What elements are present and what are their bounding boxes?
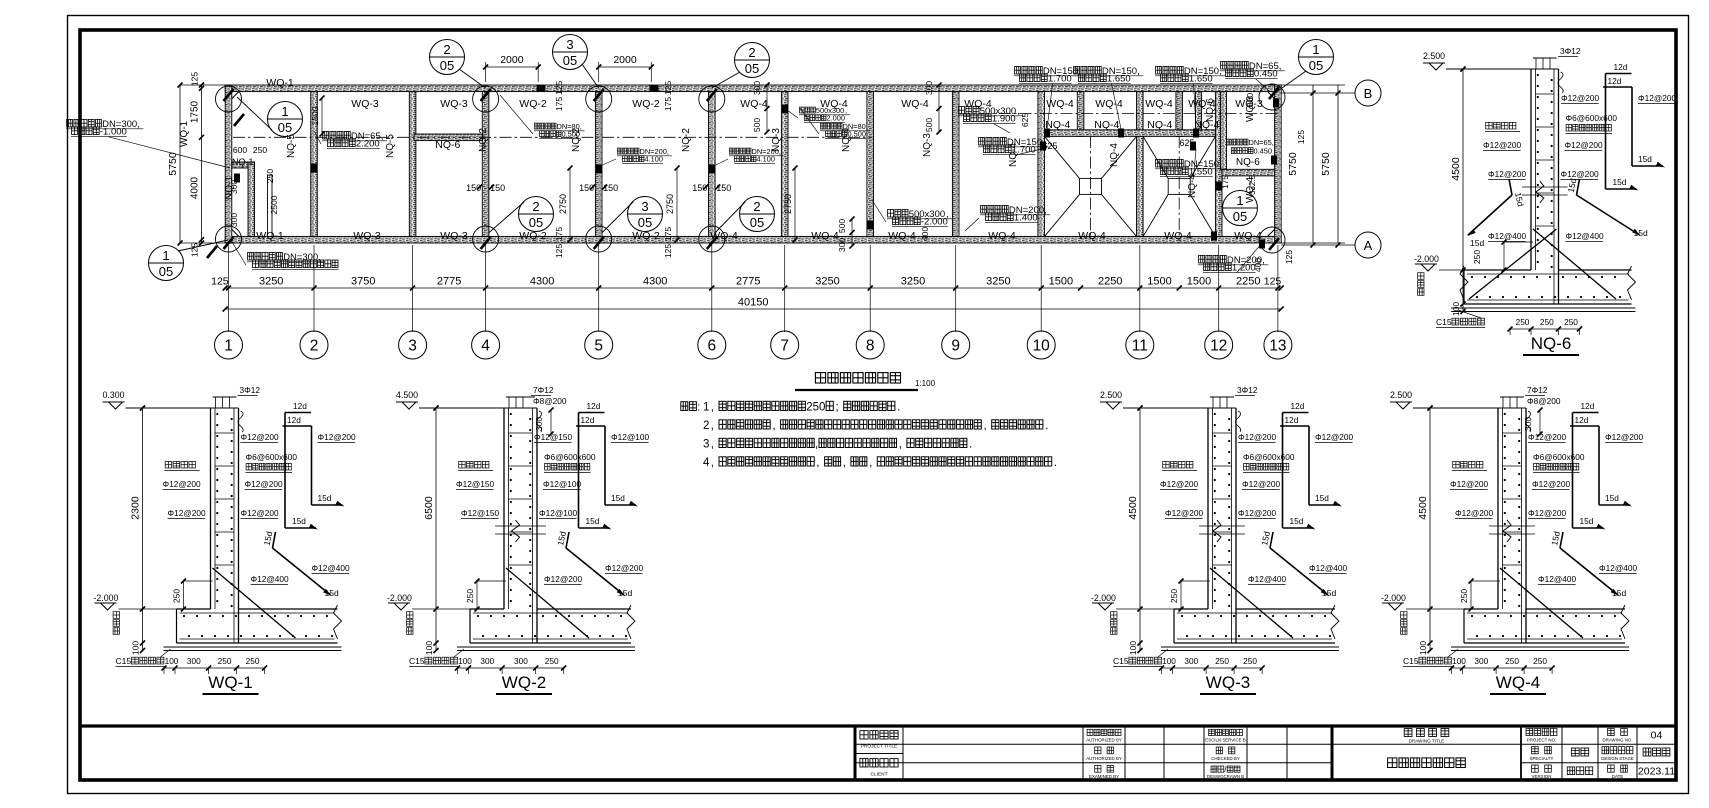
svg-text:,: ,: [779, 147, 781, 156]
svg-text:Φ12@400: Φ12@400: [1599, 563, 1637, 573]
svg-text:,: ,: [1044, 205, 1047, 216]
svg-text:500: 500: [752, 118, 762, 132]
svg-text:175: 175: [663, 227, 673, 241]
svg-text:4: 4: [703, 457, 710, 469]
svg-text:625: 625: [1020, 113, 1030, 127]
svg-text:12d: 12d: [1291, 401, 1305, 411]
svg-text:5750: 5750: [1287, 152, 1299, 176]
svg-text:125: 125: [1264, 276, 1282, 288]
svg-text:AUTHORIZED BY: AUTHORIZED BY: [1086, 738, 1122, 743]
svg-text:Φ12@200: Φ12@200: [1605, 432, 1643, 442]
svg-text:NQ-6: NQ-6: [1236, 157, 1260, 168]
svg-text:100: 100: [1128, 641, 1138, 655]
svg-text:4.500: 4.500: [396, 390, 418, 400]
svg-text:2775: 2775: [736, 276, 760, 288]
svg-text:5: 5: [594, 338, 603, 355]
svg-text:100: 100: [458, 656, 472, 666]
svg-text:PROJECT TITLE: PROJECT TITLE: [861, 744, 898, 750]
svg-text:WQ-4: WQ-4: [1145, 98, 1173, 110]
svg-text:15d: 15d: [1605, 493, 1619, 503]
svg-text:-2.000: -2.000: [921, 217, 948, 228]
svg-text:C15: C15: [409, 656, 425, 666]
svg-text:3: 3: [641, 199, 648, 214]
svg-text:VERSION: VERSION: [1532, 774, 1552, 779]
svg-text:,: ,: [815, 439, 818, 451]
svg-text:250: 250: [1215, 656, 1229, 666]
svg-text:C15: C15: [116, 656, 132, 666]
svg-text:CHECKED BY: CHECKED BY: [1211, 756, 1240, 761]
svg-text:1: 1: [1312, 42, 1319, 57]
svg-text:Φ12@200: Φ12@200: [1483, 140, 1521, 150]
svg-text:1: 1: [703, 402, 709, 414]
svg-text:4500: 4500: [1450, 157, 1462, 181]
svg-text:,: ,: [381, 131, 384, 142]
svg-text:Φ12@400: Φ12@400: [312, 563, 350, 573]
svg-text:125: 125: [1284, 250, 1294, 264]
svg-text:7Φ12: 7Φ12: [1527, 385, 1548, 395]
svg-text:Φ6@600x600: Φ6@600x600: [1566, 113, 1618, 123]
svg-text:Φ12@200: Φ12@200: [1561, 169, 1599, 179]
svg-text:05: 05: [159, 264, 173, 279]
svg-text:12d: 12d: [581, 415, 595, 425]
svg-text:125: 125: [211, 276, 229, 288]
svg-text:.: .: [969, 439, 972, 451]
svg-text:3Φ12: 3Φ12: [1560, 46, 1581, 56]
svg-text:2775: 2775: [437, 276, 461, 288]
svg-text:3: 3: [703, 439, 709, 451]
svg-text:Φ8@200: Φ8@200: [1527, 396, 1561, 406]
svg-text:15d: 15d: [618, 588, 632, 598]
svg-text:175: 175: [554, 97, 564, 111]
svg-text:3250: 3250: [901, 276, 925, 288]
svg-text:Φ12@400: Φ12@400: [1566, 231, 1604, 241]
svg-text:-2.000: -2.000: [387, 593, 412, 603]
svg-text:WQ-4: WQ-4: [740, 98, 768, 110]
svg-text:3: 3: [408, 338, 417, 355]
svg-text:Φ12@200: Φ12@200: [318, 432, 356, 442]
svg-text:2: 2: [703, 420, 709, 432]
svg-text:DATE: DATE: [1612, 774, 1623, 779]
svg-text:Φ12@200: Φ12@200: [1238, 432, 1276, 442]
svg-text:Φ12@200: Φ12@200: [168, 508, 206, 518]
svg-text:Φ12@200: Φ12@200: [1455, 508, 1493, 518]
svg-text:250: 250: [1516, 317, 1530, 327]
svg-text::: :: [697, 402, 700, 414]
svg-text:,: ,: [1219, 159, 1222, 170]
svg-text:1:100: 1:100: [915, 379, 936, 388]
svg-text:NQ-3: NQ-3: [922, 133, 933, 157]
svg-text:,: ,: [1017, 106, 1020, 117]
svg-text:,: ,: [772, 420, 775, 432]
svg-text:175: 175: [554, 227, 564, 241]
svg-text:Φ12@200: Φ12@200: [1638, 93, 1676, 103]
svg-text:300: 300: [187, 656, 201, 666]
svg-text:5750: 5750: [1320, 152, 1332, 176]
svg-text:250: 250: [465, 589, 475, 603]
svg-text:40150: 40150: [738, 297, 769, 309]
svg-text:2250: 2250: [1236, 276, 1260, 288]
svg-text:100: 100: [1451, 302, 1461, 316]
svg-text:A: A: [1364, 238, 1373, 253]
svg-text:WQ-1: WQ-1: [256, 230, 284, 242]
svg-text:12d: 12d: [1614, 62, 1628, 72]
svg-text:WQ-1: WQ-1: [179, 120, 190, 147]
svg-text:4500: 4500: [1417, 496, 1429, 520]
svg-text:332.5: 332.5: [1248, 174, 1257, 195]
svg-text:1.650: 1.650: [1189, 74, 1213, 85]
svg-text:1.550: 1.550: [1189, 167, 1213, 178]
svg-text:05: 05: [638, 215, 652, 230]
svg-text:300: 300: [1474, 656, 1488, 666]
svg-text:2: 2: [532, 199, 539, 214]
svg-text:Φ12@200: Φ12@200: [241, 432, 279, 442]
svg-text:Φ6@600x600: Φ6@600x600: [1533, 452, 1585, 462]
svg-text:400: 400: [920, 227, 930, 241]
svg-text:100: 100: [424, 641, 434, 655]
svg-text:4300: 4300: [530, 276, 554, 288]
svg-text:NQ-6: NQ-6: [1205, 98, 1216, 122]
svg-text:NQ-4: NQ-4: [1045, 119, 1070, 131]
svg-text:Φ12@200: Φ12@200: [1528, 432, 1566, 442]
svg-text:NQ-5: NQ-5: [385, 134, 396, 158]
svg-text:100: 100: [165, 656, 179, 666]
svg-text:Φ12@150: Φ12@150: [534, 432, 572, 442]
svg-text:05: 05: [440, 58, 454, 73]
svg-text:2750: 2750: [783, 194, 793, 214]
svg-text:WQ-2: WQ-2: [519, 230, 547, 242]
svg-text:05: 05: [1233, 209, 1247, 224]
svg-text:Φ12@200: Φ12@200: [1565, 140, 1603, 150]
svg-text:DRAWING NO.: DRAWING NO.: [1602, 738, 1632, 743]
svg-text:Φ12@200: Φ12@200: [1242, 479, 1280, 489]
svg-text:300: 300: [924, 81, 934, 95]
svg-text:4000: 4000: [190, 176, 201, 199]
svg-text:250: 250: [1169, 589, 1179, 603]
svg-text:DRAWING TITLE: DRAWING TITLE: [1409, 739, 1445, 744]
svg-text:-2.000: -2.000: [1091, 593, 1116, 603]
svg-text:WQ-2: WQ-2: [519, 98, 547, 110]
svg-text:-2.000: -2.000: [1414, 254, 1439, 264]
svg-text:600: 600: [233, 145, 247, 155]
svg-text:Φ12@400: Φ12@400: [1538, 574, 1576, 584]
svg-text:15d: 15d: [1634, 228, 1648, 238]
svg-text:NQ-1: NQ-1: [232, 157, 254, 167]
svg-text:PROJECT NO.: PROJECT NO.: [1527, 738, 1556, 743]
svg-text:05: 05: [750, 215, 764, 230]
svg-text:125: 125: [663, 81, 673, 95]
svg-text:4300: 4300: [643, 276, 667, 288]
svg-text:5750: 5750: [167, 152, 179, 176]
svg-text:15d: 15d: [1638, 154, 1652, 164]
svg-text:15d: 15d: [1315, 493, 1329, 503]
svg-text:125: 125: [1296, 130, 1306, 144]
svg-text:WQ-2: WQ-2: [632, 98, 660, 110]
svg-text:15d: 15d: [292, 516, 306, 526]
svg-text:125: 125: [190, 72, 200, 86]
svg-text:Φ6@600x600: Φ6@600x600: [544, 452, 596, 462]
svg-text:Φ12@100: Φ12@100: [543, 479, 581, 489]
svg-text:15d: 15d: [1470, 238, 1484, 248]
svg-text:Φ12@200: Φ12@200: [1450, 479, 1488, 489]
svg-text:Φ12@100: Φ12@100: [539, 508, 577, 518]
svg-text:2.500: 2.500: [1423, 51, 1445, 61]
svg-text:Φ12@400: Φ12@400: [251, 574, 289, 584]
svg-text:.: .: [1054, 457, 1057, 469]
svg-text:1500: 1500: [1147, 276, 1171, 288]
svg-text:15d: 15d: [318, 493, 332, 503]
svg-text:;: ;: [836, 402, 839, 414]
svg-text:2023.11: 2023.11: [1638, 766, 1675, 778]
svg-text:15d: 15d: [1612, 588, 1626, 598]
svg-text:Φ12@200: Φ12@200: [1165, 508, 1203, 518]
svg-text:3750: 3750: [351, 276, 375, 288]
svg-text:2000: 2000: [500, 54, 524, 66]
svg-text:,: ,: [667, 147, 669, 156]
svg-text:15d: 15d: [1580, 516, 1594, 526]
svg-text:NQ-2: NQ-2: [681, 128, 692, 152]
svg-text:C15: C15: [1436, 317, 1452, 327]
svg-text:15d: 15d: [1613, 177, 1627, 187]
svg-text:Φ12@200: Φ12@200: [1528, 508, 1566, 518]
svg-text:,: ,: [1262, 255, 1265, 266]
svg-text:13: 13: [1269, 338, 1286, 355]
svg-text:B: B: [1364, 86, 1373, 101]
svg-text:05: 05: [529, 215, 543, 230]
svg-text:,: ,: [580, 122, 582, 131]
svg-text:1: 1: [281, 104, 288, 119]
svg-text:2: 2: [310, 338, 319, 355]
svg-text:15d: 15d: [325, 588, 339, 598]
svg-text:7: 7: [780, 338, 789, 355]
svg-text:9: 9: [951, 338, 960, 355]
svg-text:WQ-4: WQ-4: [1496, 673, 1540, 692]
svg-text:WQ-2: WQ-2: [502, 673, 546, 692]
svg-text:3250: 3250: [259, 276, 283, 288]
svg-text:2: 2: [443, 42, 450, 57]
svg-text:12d: 12d: [587, 401, 601, 411]
svg-text:ESCILN SERVICE B: ESCILN SERVICE B: [1205, 738, 1245, 743]
svg-text:WQ-3: WQ-3: [353, 230, 381, 242]
svg-text:1500: 1500: [310, 106, 320, 125]
svg-text:Φ12@200: Φ12@200: [245, 479, 283, 489]
svg-text:100: 100: [1452, 656, 1466, 666]
svg-text:WQ-3: WQ-3: [440, 98, 468, 110]
svg-text:3: 3: [566, 37, 573, 52]
svg-text:250: 250: [172, 589, 182, 603]
svg-text:300: 300: [514, 656, 528, 666]
svg-text:2750: 2750: [665, 194, 675, 214]
svg-text:125: 125: [554, 81, 564, 95]
svg-text:2: 2: [748, 45, 755, 60]
svg-text:Φ12@200: Φ12@200: [605, 563, 643, 573]
svg-text:Φ12@200: Φ12@200: [544, 574, 582, 584]
svg-text:1.700: 1.700: [1048, 74, 1072, 85]
svg-text:15d: 15d: [586, 516, 600, 526]
svg-text:DESIGN STAGE: DESIGN STAGE: [1601, 756, 1634, 761]
svg-text:Φ12@200: Φ12@200: [163, 479, 201, 489]
svg-text:125: 125: [663, 244, 673, 258]
svg-text:,: ,: [1272, 138, 1274, 147]
svg-text:WQ-4: WQ-4: [901, 98, 929, 110]
svg-text:1: 1: [1236, 193, 1243, 208]
svg-text:2750: 2750: [558, 194, 568, 214]
svg-text:2250: 2250: [1098, 276, 1122, 288]
svg-text:Φ8@200: Φ8@200: [533, 396, 567, 406]
svg-text:WQ-3: WQ-3: [440, 230, 468, 242]
svg-text:WQ-4: WQ-4: [1234, 230, 1262, 242]
svg-text:1.900: 1.900: [992, 114, 1016, 125]
svg-text:300: 300: [480, 656, 494, 666]
svg-text:300: 300: [752, 81, 762, 95]
svg-text:05: 05: [278, 120, 292, 135]
svg-text:Φ6@600x600: Φ6@600x600: [1243, 452, 1295, 462]
svg-text:WQ-4: WQ-4: [710, 230, 738, 242]
svg-text:175: 175: [663, 97, 673, 111]
svg-text:150: 150: [716, 183, 731, 193]
svg-text:WQ-1: WQ-1: [266, 77, 294, 89]
svg-text:,: ,: [816, 457, 819, 469]
svg-text:.: .: [1045, 420, 1048, 432]
svg-text:250: 250: [246, 656, 260, 666]
svg-text:Φ12@200: Φ12@200: [1532, 479, 1570, 489]
svg-text:300: 300: [1245, 93, 1255, 107]
svg-text:C15: C15: [1403, 656, 1419, 666]
svg-text:,: ,: [984, 420, 987, 432]
svg-text:,: ,: [845, 106, 847, 115]
svg-text:250: 250: [1472, 250, 1482, 264]
svg-text:250: 250: [1540, 317, 1554, 327]
svg-text:250: 250: [218, 656, 232, 666]
svg-text:2300: 2300: [130, 496, 142, 520]
svg-text:,: ,: [1042, 137, 1045, 148]
svg-text:125: 125: [554, 244, 564, 258]
svg-text:,: ,: [711, 439, 714, 451]
svg-text:2.500: 2.500: [1390, 390, 1412, 400]
svg-text:Φ12@150: Φ12@150: [461, 508, 499, 518]
svg-text:Φ12@400: Φ12@400: [1309, 563, 1347, 573]
svg-text:12d: 12d: [1575, 415, 1589, 425]
svg-text:Φ12@150: Φ12@150: [456, 479, 494, 489]
svg-text:,: ,: [866, 122, 868, 131]
svg-text:-1.000: -1.000: [100, 127, 127, 138]
svg-text:2: 2: [753, 199, 760, 214]
svg-text:Φ12@400: Φ12@400: [1248, 574, 1286, 584]
svg-text:100: 100: [1162, 656, 1176, 666]
svg-text:NQ-4: NQ-4: [1109, 143, 1120, 167]
svg-text:05: 05: [1309, 58, 1323, 73]
svg-text:DESWGCRAWN B: DESWGCRAWN B: [1207, 774, 1244, 779]
svg-text:10: 10: [1033, 338, 1051, 355]
svg-text:175: 175: [1221, 175, 1230, 189]
svg-text:300: 300: [229, 213, 239, 227]
svg-text:11: 11: [1132, 338, 1148, 355]
svg-text:WQ-4: WQ-4: [1078, 230, 1106, 242]
svg-text:NQ-6: NQ-6: [435, 139, 460, 151]
svg-text:12d: 12d: [293, 401, 307, 411]
svg-text:12d: 12d: [1581, 401, 1595, 411]
svg-text:500: 500: [924, 118, 934, 132]
svg-text:,: ,: [1137, 66, 1140, 77]
svg-text:WQ-2: WQ-2: [632, 230, 660, 242]
svg-text:Φ6@600x600: Φ6@600x600: [246, 452, 298, 462]
svg-text:12: 12: [1210, 338, 1227, 355]
svg-text:250: 250: [253, 145, 267, 155]
svg-text:,: ,: [137, 119, 140, 130]
svg-text:250: 250: [545, 656, 559, 666]
svg-text:,: ,: [869, 457, 872, 469]
svg-text:,: ,: [711, 457, 714, 469]
svg-text:WQ-4: WQ-4: [888, 230, 916, 242]
svg-text:AUTHORIZED BY: AUTHORIZED BY: [1086, 756, 1122, 761]
svg-text:1750: 1750: [190, 100, 201, 123]
svg-text:WQ-4: WQ-4: [988, 230, 1016, 242]
svg-text:05: 05: [745, 61, 759, 76]
svg-text:150: 150: [603, 183, 618, 193]
svg-text:15d: 15d: [1290, 516, 1304, 526]
svg-text:Φ12@200: Φ12@200: [1160, 479, 1198, 489]
svg-text:1: 1: [224, 338, 233, 355]
svg-text:1: 1: [162, 248, 169, 263]
svg-text:Φ12@200: Φ12@200: [1561, 93, 1599, 103]
svg-text:100: 100: [131, 641, 141, 655]
svg-text:0.450: 0.450: [1254, 69, 1278, 80]
svg-text:WQ-4: WQ-4: [1164, 230, 1192, 242]
svg-text:125: 125: [190, 243, 200, 257]
svg-text:NQ-4: NQ-4: [1094, 119, 1119, 131]
svg-text:04: 04: [1651, 730, 1663, 742]
svg-text:NQ-4: NQ-4: [1147, 119, 1172, 131]
svg-text:4: 4: [481, 338, 490, 355]
svg-text:.: .: [897, 402, 900, 414]
svg-text:6500: 6500: [423, 496, 435, 520]
svg-text:250: 250: [265, 169, 275, 183]
svg-text:300: 300: [1523, 417, 1533, 431]
svg-text:250: 250: [806, 402, 825, 414]
svg-text:WQ-3: WQ-3: [1206, 673, 1250, 692]
svg-text:EXAMINED BY: EXAMINED BY: [1089, 774, 1119, 779]
svg-text:,: ,: [1279, 61, 1282, 72]
svg-text:1500: 1500: [1049, 276, 1073, 288]
svg-text:SPECIALTY: SPECIALTY: [1530, 756, 1554, 761]
svg-text:2500: 2500: [269, 195, 279, 214]
svg-text:WQ-3: WQ-3: [351, 98, 379, 110]
svg-text:Φ12@200: Φ12@200: [1488, 169, 1526, 179]
svg-text:15d: 15d: [1322, 588, 1336, 598]
svg-text:250: 250: [1505, 656, 1519, 666]
svg-text:,: ,: [711, 420, 714, 432]
svg-text:12d: 12d: [287, 415, 301, 425]
svg-text:8: 8: [866, 338, 875, 355]
svg-text:NQ-5: NQ-5: [286, 134, 297, 158]
svg-text:100: 100: [1418, 641, 1428, 655]
svg-text:Φ12@100: Φ12@100: [611, 432, 649, 442]
svg-text:WQ-4: WQ-4: [811, 230, 839, 242]
svg-text:250: 250: [1243, 656, 1257, 666]
svg-text:3Φ12: 3Φ12: [240, 385, 261, 395]
svg-text:Φ12@200: Φ12@200: [1315, 432, 1353, 442]
svg-text:2000: 2000: [613, 54, 637, 66]
svg-text:300: 300: [229, 180, 239, 194]
svg-text:2.500: 2.500: [1100, 390, 1122, 400]
svg-text:250: 250: [1533, 656, 1547, 666]
svg-text:1.700: 1.700: [1012, 145, 1036, 156]
svg-text:1500: 1500: [1187, 276, 1211, 288]
svg-text:1.650: 1.650: [1107, 74, 1131, 85]
svg-text:NQ-6: NQ-6: [1531, 334, 1572, 353]
svg-text:0.300: 0.300: [103, 390, 125, 400]
svg-text:15d: 15d: [611, 493, 625, 503]
svg-text:3Φ12: 3Φ12: [1237, 385, 1258, 395]
